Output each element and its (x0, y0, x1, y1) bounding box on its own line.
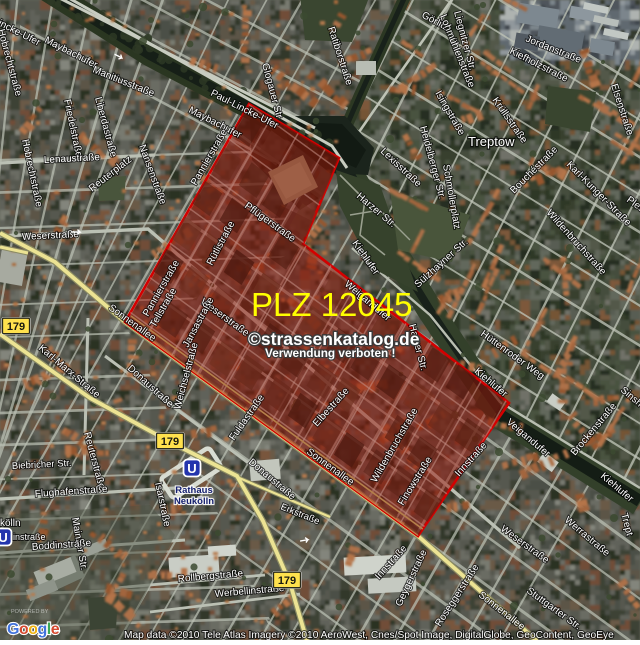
svg-text:kölln: kölln (0, 518, 21, 529)
svg-text:U: U (187, 461, 196, 476)
svg-text:Map data ©2010 Tele Atlas Ima: Map data ©2010 Tele Atlas Imagery ©2010 … (124, 630, 614, 640)
svg-text:179: 179 (278, 575, 296, 587)
svg-text:U: U (0, 530, 8, 545)
svg-text:Verwendung verboten !: Verwendung verboten ! (265, 346, 395, 360)
svg-text:179: 179 (161, 436, 179, 448)
svg-text:PLZ 12045: PLZ 12045 (251, 286, 412, 323)
svg-text:Google: Google (7, 621, 60, 638)
svg-text:dinstraße: dinstraße (8, 532, 46, 542)
svg-text:POWERED BY: POWERED BY (11, 609, 49, 615)
svg-text:179: 179 (7, 321, 25, 333)
svg-text:Rathaus: Rathaus (175, 485, 212, 496)
svg-text:Neukölln: Neukölln (174, 496, 214, 507)
svg-text:Treptow: Treptow (468, 134, 515, 149)
